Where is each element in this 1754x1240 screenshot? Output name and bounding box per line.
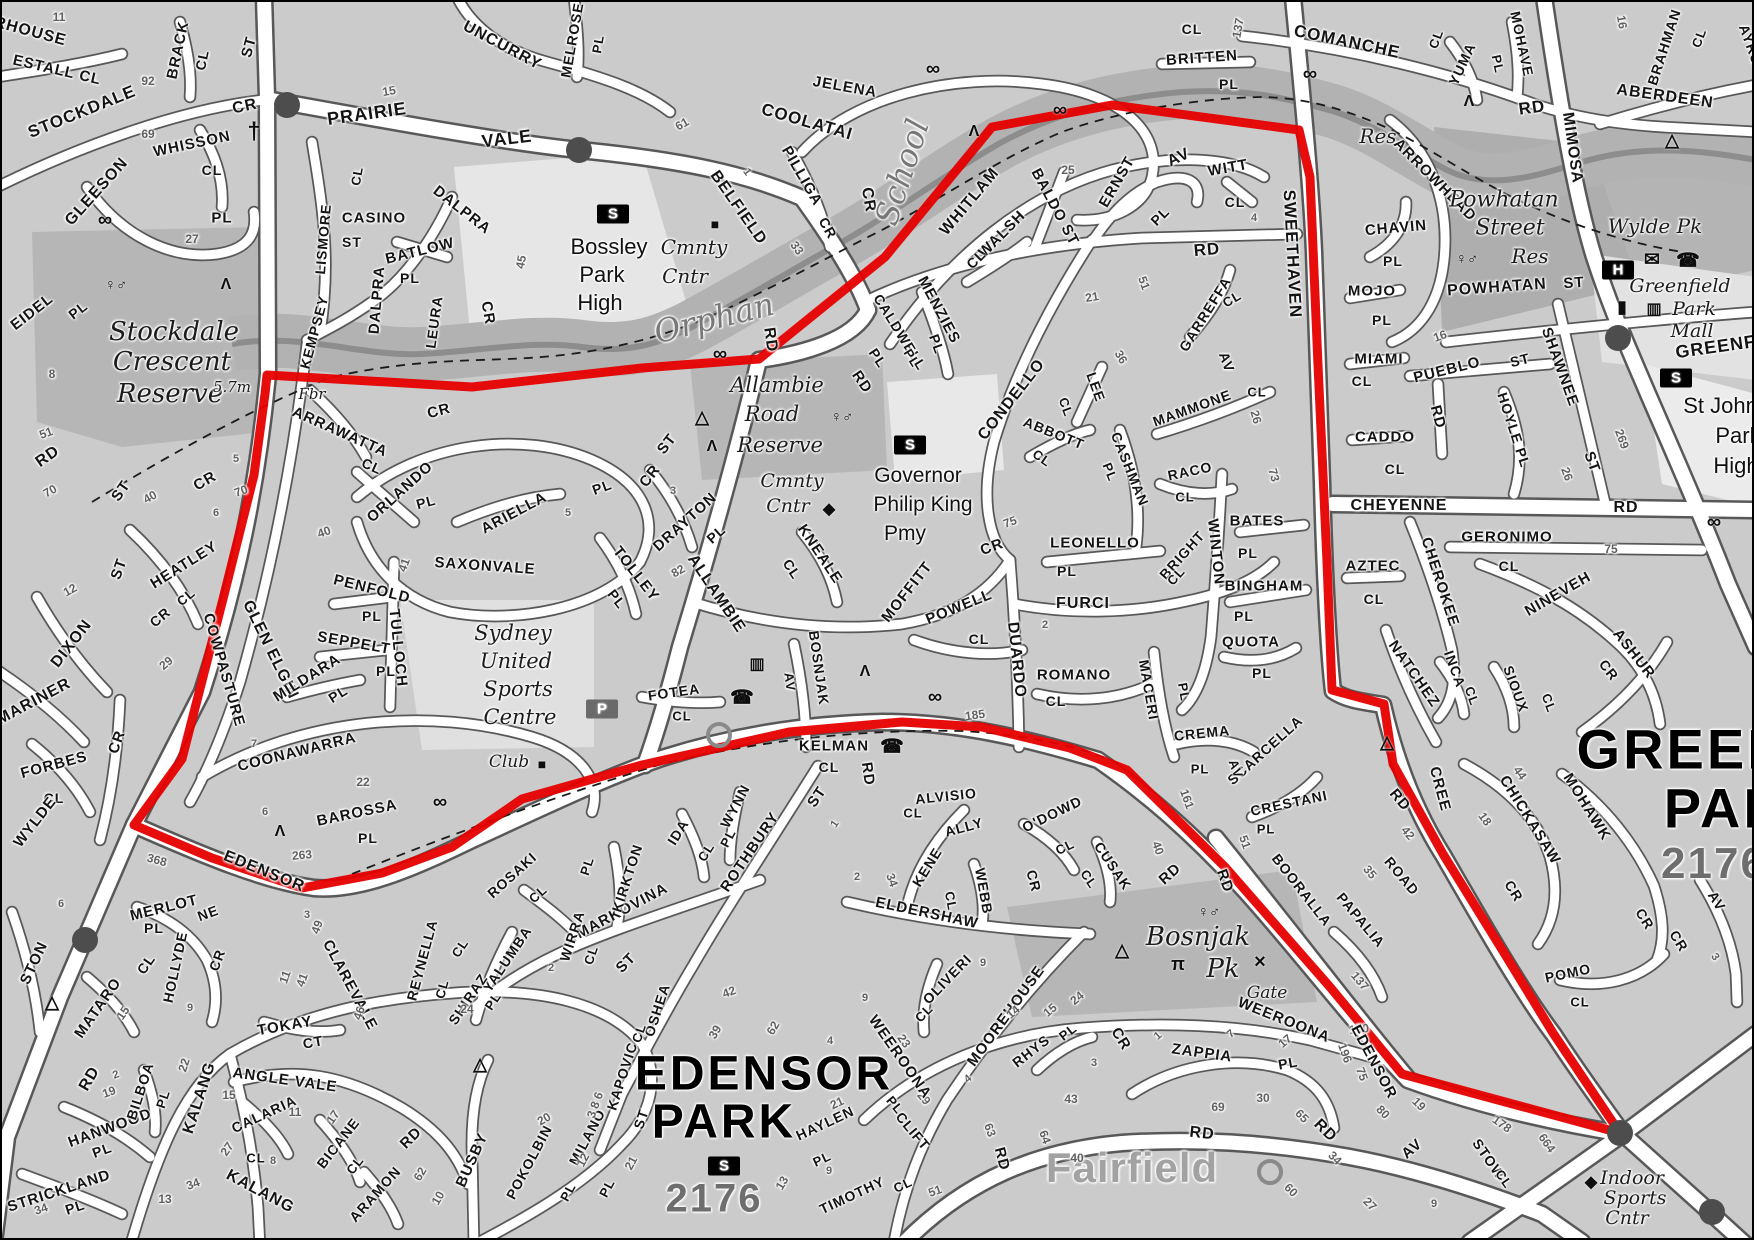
street-label: MOJO [1348,283,1396,300]
hospital-icon-glyph: H [1602,261,1634,280]
place-label: Sports [483,677,553,701]
trolley-icon: ▥ [1646,302,1661,318]
place-label: Cntr [766,495,810,517]
place-label: High [1713,453,1754,479]
house-number: 7 [251,738,257,750]
trolley-icon: ▥ [749,657,764,673]
road [1347,576,1400,578]
pedestrian-icon: Λ [707,439,718,455]
building-marker-icon: ■ [538,757,546,771]
street-label: PL [1277,1053,1299,1072]
postcode-label: 2176 [666,1177,763,1222]
pedestrian-icon: Λ [221,277,232,293]
street-label: PL [589,34,607,55]
place-label: Greenfield [1629,275,1730,297]
street-label: CL [969,631,990,647]
street-label: CL [1364,591,1385,607]
bicycle-icon: ∞ [928,687,942,707]
pedestrian-icon: Λ [860,664,871,680]
junction-dot [1605,325,1631,351]
junction-dot [72,927,98,953]
facility-marker-icon: ◆ [1585,1175,1597,1191]
street-label: CL [246,1151,265,1166]
place-label: High [577,290,622,316]
suburb-label: PARK [1664,776,1754,841]
street-label: RD [759,326,780,353]
house-number: 30 [1256,1091,1269,1105]
junction-dot [274,92,300,118]
bicycle-icon: ∞ [1303,64,1317,84]
place-label: Mall [1671,320,1714,342]
house-number: 45 [513,254,529,270]
street-label: PL [358,830,378,846]
place-label: Res [1511,244,1548,268]
playground-icon: △ [1380,733,1394,751]
street-label: PL [1191,762,1210,777]
house-number: 11 [289,1105,302,1119]
street-label: PL [1238,545,1258,561]
house-number: 6 [262,806,268,818]
house-number: 8 [49,367,56,381]
toilets-icon: ♀♂ [1198,905,1221,920]
house-number: 6 [58,898,64,910]
street-label: PL [1372,312,1392,328]
place-label: Indoor [1600,1167,1664,1189]
house-number: 21 [1084,289,1100,305]
house-number: 8 [270,1155,276,1167]
street-label: ST [342,234,362,250]
place-label: 5.7m [213,378,251,396]
street-label: CL [202,162,223,178]
street-label: RD [1193,239,1221,261]
street-label: MIAMI [1354,351,1403,368]
suburb-label: GREENFIELD [1577,717,1754,782]
street-label: BATES [1230,513,1285,530]
place-label: Cntr [662,264,708,288]
church-icon: † [247,120,260,144]
street-label: CL [1499,558,1520,574]
mail-icon: ✉ [1644,251,1660,270]
phone-icon: ☎ [730,689,754,708]
place-label: Street [1475,216,1544,241]
street-label: CL [1352,373,1373,389]
school-icon-glyph: S [894,436,926,455]
postcode-label: 2176 [1661,839,1754,889]
place-label: Cmnty [760,470,823,492]
house-number: 9 [187,1002,193,1014]
house-number: 2 [548,962,554,974]
playground-icon: △ [695,408,709,426]
house-number: 43 [1064,1092,1077,1106]
school-icon: S [708,1157,740,1176]
house-number: 185 [964,707,986,724]
house-number: 9 [862,992,868,1004]
street-label: ROMANO [1037,667,1111,684]
place-label: Allambie [730,373,824,397]
house-number: 263 [291,847,312,863]
place-label: Pmy [884,522,926,546]
bicycle-icon: ∞ [926,59,940,79]
place-label: Crescent [113,347,231,377]
bicycle-icon: ∞ [98,210,112,230]
street-label: CL [1247,385,1266,400]
street-label: CL [1182,21,1203,37]
petrol-icon: ▮ [1617,299,1626,316]
house-number: 3 [670,485,676,497]
place-label: Road [745,402,799,426]
playground-icon: △ [1115,941,1129,959]
place-label: Powhatan [1449,188,1558,213]
place-label: Stockdale [109,317,239,347]
street-label: PL [211,210,232,227]
street-label: KELMAN [799,738,869,755]
street-label: AZTEC [1346,558,1401,575]
bicycle-icon: ∞ [1053,100,1067,120]
street-label: RD [1613,499,1638,517]
suburb-label: EDENSOR [635,1047,893,1102]
street-label: PL [362,608,382,624]
place-label: Park [1672,298,1716,320]
place-label: Reserve [117,379,223,409]
street-label: ST [1563,274,1585,292]
picnic-icon: π [1171,955,1185,973]
pedestrian-icon: Λ [275,824,286,840]
street-label: CL [1225,194,1246,210]
house-number: 2 [1042,619,1048,631]
place-label: Pk [1206,954,1239,984]
street-label: CL [1046,693,1067,709]
house-number: 6 [213,507,219,519]
house-number: 40 [1070,1151,1083,1165]
place-label: St Johns [1683,393,1754,419]
house-number: 4 [827,1035,833,1047]
facility-marker-icon: ◆ [823,502,835,518]
bicycle-icon: ∞ [1707,512,1721,532]
school-icon-glyph: S [1660,369,1692,388]
place-label: Sports [1603,1187,1666,1209]
parking-icon: P [586,700,618,719]
house-number: 69 [1211,1100,1224,1114]
place-label: Centre [484,705,557,729]
house-number: 11 [53,10,66,24]
place-label: Park [1715,423,1754,449]
house-number: 3 [304,909,310,921]
house-number: 5 [565,507,571,519]
street-label: BINGHAM [1225,578,1304,595]
street-label: AV [781,671,799,692]
house-number: 3 [1091,1057,1097,1069]
street-label: PL [400,270,420,286]
street-label: CL [672,709,691,724]
hospital-icon: H [1602,261,1634,280]
place-label: Cmnty [661,235,727,259]
street-label: CHEYENNE [1351,497,1448,515]
house-number: 2 [854,871,860,883]
playground-icon: △ [1665,131,1679,149]
suburb-label: PARK [652,1095,796,1150]
street-label: QUOTA [1222,634,1280,651]
street-label: PL [144,920,164,936]
street-label: PL [1257,822,1276,837]
bicycle-icon: ∞ [433,792,447,812]
street-label: PL [1175,682,1193,703]
school-icon: S [894,436,926,455]
street-label: CL [1570,995,1589,1010]
house-number: 69 [141,127,154,141]
house-number: 4 [1251,212,1257,224]
locality-circle [1259,1161,1281,1183]
place-label: Bosnjak [1146,922,1250,952]
house-number: 15 [381,83,397,99]
house-number: 27 [185,232,198,246]
toilets-icon: ♀♂ [105,278,128,293]
street-label: PL [1057,563,1077,579]
street-label: LEONELLO [1050,535,1140,552]
playground-icon: △ [45,993,59,1011]
toilets-icon: ♀♂ [831,410,854,425]
house-number: 92 [141,74,154,88]
street-label: PL [1383,253,1403,269]
place-label: United [480,649,552,673]
street-label: RD [1517,96,1546,120]
road [1450,547,1702,550]
phone-icon: ☎ [880,738,904,757]
house-number: 25 [1061,163,1074,177]
place-label: Wylde Pk [1608,214,1702,238]
school-icon-glyph: S [597,205,629,224]
house-number: 75 [1604,542,1617,556]
place-label: Reserve [737,433,823,457]
house-number: 9 [980,957,986,969]
street-label: PL [1234,608,1254,624]
street-label: FURCI [1056,595,1110,613]
pedestrian-icon: Λ [969,124,980,140]
building-marker-icon: ■ [711,217,719,231]
place-label: Governor [874,464,962,488]
place-label: Cntr [1605,1207,1649,1229]
school-icon-glyph: S [708,1157,740,1176]
toilets-icon: ♀♂ [1456,252,1479,267]
junction-dot [1699,1199,1725,1225]
house-number: 22 [356,775,369,789]
place-label: Sydney [474,621,552,645]
school-icon: S [597,205,629,224]
phone-icon: ☎ [1676,252,1700,271]
map-canvas[interactable]: RHOUSEESTALL CLSTOCKDALECRBRACKCLST9211G… [0,0,1754,1240]
school-icon: S [1660,369,1692,388]
house-number: 13 [158,1192,171,1206]
street-label: CL [1385,461,1406,477]
house-number: 16 [1614,14,1630,30]
house-number: 15 [222,1088,235,1102]
street-label: PL [1252,665,1272,681]
house-number: 9 [826,1165,832,1177]
junction-dot [1607,1120,1633,1146]
street-label: CASINO [342,210,406,227]
street-label: PL [1219,76,1239,92]
junction-dot [566,137,592,163]
playground-icon: △ [473,1055,487,1073]
house-number: 5 [233,453,239,465]
street-label: RD [1189,1124,1216,1145]
place-label: Club [489,752,529,772]
place-label: Fbr [298,385,325,403]
parking-icon-glyph: P [586,700,618,719]
gate-icon: × [1254,952,1266,972]
street-label: RD [858,761,878,787]
street-label: CADDO [1355,429,1415,446]
house-number: 24 [460,1002,473,1016]
place-label: Bossley [570,234,647,260]
road [1047,551,1160,562]
place-label: Gate [1247,983,1288,1003]
place-label: Park [579,262,624,288]
street-label: CL [819,759,840,775]
place-label: Philip King [873,493,972,517]
street-label: CL [1175,490,1194,505]
bicycle-icon: ∞ [713,344,727,364]
street-label: CL [903,806,922,821]
house-number: 9 [1431,1198,1437,1210]
street-label: GERONIMO [1461,529,1552,546]
pedestrian-icon: Λ [1464,94,1475,110]
